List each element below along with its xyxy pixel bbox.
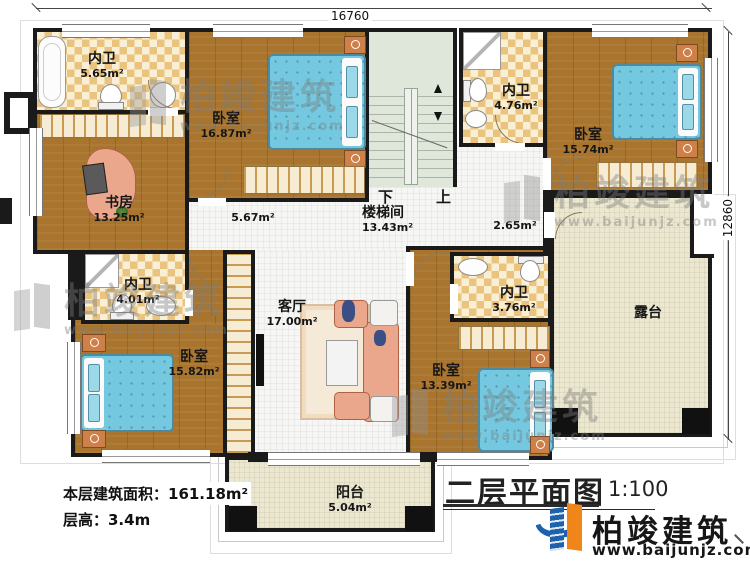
room-label-bath-mid-left: 内卫 4.01m²: [106, 278, 170, 306]
door-gap: [185, 290, 193, 316]
room-label-bath-bottom-right: 内卫 3.76m²: [482, 286, 546, 314]
shower-icon: [463, 32, 501, 70]
armchair: [370, 396, 398, 422]
pillow: [88, 394, 100, 422]
pillow: [346, 66, 358, 98]
nightstand: [82, 430, 106, 448]
room-label-bath-top-right: 内卫 4.76m²: [484, 84, 548, 112]
room-label-stair-hall: 楼梯间 13.43m²: [362, 206, 436, 234]
room-label-bedroom-right: 卧室 15.74m²: [550, 128, 626, 156]
balcony-pillar: [405, 506, 433, 531]
bathtub: [38, 36, 66, 108]
bed: [268, 54, 366, 150]
brand-logo-icon: [536, 504, 586, 558]
terrace-pillar: [552, 408, 578, 434]
room-label-bath-top-left: 内卫 5.65m²: [70, 52, 134, 80]
dimension-top-value: 16760: [328, 9, 372, 23]
nightstand: [344, 36, 366, 54]
room-label-terrace: 露台: [608, 306, 688, 322]
wardrobe: [596, 162, 698, 188]
pillow: [682, 74, 694, 100]
bedroom-entry-opening: [189, 316, 223, 324]
stair-arrow-down: [434, 112, 442, 121]
coffee-table: [326, 340, 358, 386]
pillow: [534, 380, 546, 408]
door-gap: [198, 198, 226, 206]
tv-icon: [256, 334, 264, 386]
person-figure: [374, 330, 386, 346]
stair-up-label: 上: [436, 186, 451, 207]
wall-bath-mid-left-west: [68, 250, 84, 320]
window: [592, 24, 688, 38]
door-gap: [450, 284, 458, 314]
brand-url: www.baijunjz.com: [592, 541, 750, 559]
hallway-area-right: 2.65m²: [482, 220, 548, 232]
nightstand: [82, 334, 106, 352]
door-gap: [148, 108, 178, 116]
nightstand: [530, 350, 550, 368]
window: [29, 128, 43, 216]
room-label-bedroom-bottom-right: 卧室 13.39m²: [406, 364, 486, 392]
door-gap: [406, 252, 414, 286]
room-label-balcony: 阳台 5.04m²: [308, 486, 392, 514]
door-gap: [495, 143, 525, 151]
bed-pillow-area: [342, 58, 362, 146]
floor-plan: 16760 12860: [0, 0, 750, 569]
dimension-line-top: [36, 8, 712, 9]
window: [213, 24, 303, 38]
pillow: [682, 104, 694, 130]
plan-scale: 1:100: [608, 477, 669, 501]
hallway-area-left: 5.67m²: [220, 212, 286, 224]
window: [67, 342, 81, 434]
balcony-sliding-door: [268, 452, 420, 466]
person-figure: [342, 300, 355, 322]
terrace-pillar: [682, 408, 710, 434]
floor-height-text: 层高：3.4m: [60, 508, 153, 531]
pillow: [88, 364, 100, 392]
window: [704, 58, 718, 162]
wall-neighbor-stub: [0, 198, 12, 224]
room-label-living-room: 客厅 17.00m²: [250, 300, 334, 328]
wardrobe: [39, 114, 185, 138]
sink-icon: [458, 258, 488, 276]
toilet-tank: [98, 102, 124, 110]
window: [102, 449, 210, 463]
toilet-tank: [110, 312, 134, 320]
room-label-bedroom-top: 卧室 16.87m²: [188, 112, 264, 140]
bed-pillow-area: [678, 68, 698, 136]
floor-area-text: 本层建筑面积：161.18m²: [60, 482, 251, 505]
window: [62, 24, 150, 38]
stair-down-label: 下: [378, 186, 393, 207]
dimension-right-value: 12860: [721, 196, 735, 240]
armchair: [370, 300, 398, 326]
terrace-corner-notch: [690, 194, 714, 258]
pillow: [346, 106, 358, 138]
computer-monitor-icon: [82, 163, 108, 196]
sink-icon: [465, 110, 487, 128]
balcony-pillar: [229, 506, 257, 531]
room-label-bedroom-bottom-left: 卧室 15.82m²: [156, 350, 232, 378]
door-gap: [543, 158, 551, 190]
nightstand: [530, 436, 550, 454]
bed-pillow-area: [84, 358, 104, 428]
sofa: [334, 392, 370, 420]
window: [437, 452, 529, 466]
nightstand: [676, 44, 698, 62]
wardrobe: [243, 166, 365, 194]
toilet-icon: [520, 260, 540, 282]
stair-arrow-up: [434, 84, 442, 93]
nightstand: [676, 140, 698, 158]
wardrobe: [458, 326, 550, 350]
room-label-study: 书房 13.25m²: [86, 196, 152, 224]
